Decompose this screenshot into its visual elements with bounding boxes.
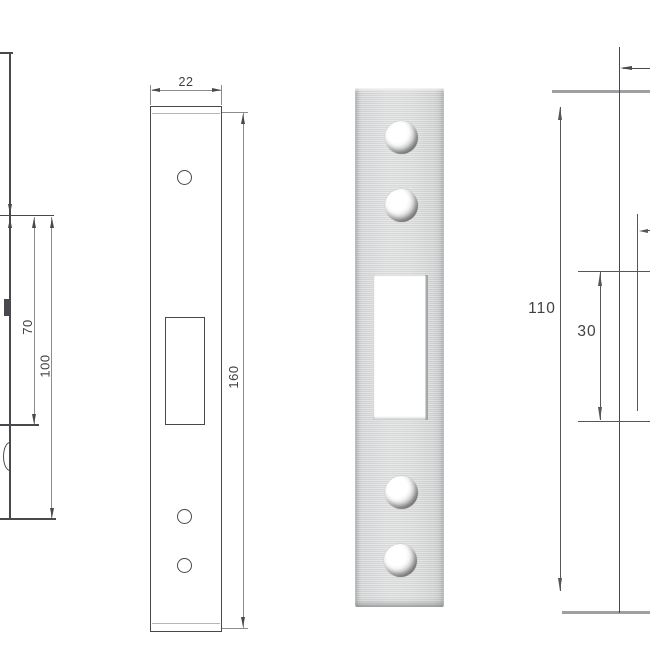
extension-line-right xyxy=(221,85,222,105)
dimension-line-30 xyxy=(600,272,601,420)
plate-top-chamfer-line xyxy=(152,113,220,114)
dimension-label-70: 70 xyxy=(21,313,35,341)
dimension-line-22 xyxy=(152,90,221,91)
plate-left-edge-line xyxy=(619,47,621,613)
arrowhead-down-icon xyxy=(50,508,54,518)
top-tick-line xyxy=(0,52,13,54)
screw-hole-outline xyxy=(177,558,192,573)
plate-top-edge-line xyxy=(552,90,650,93)
countersunk-screw-hole xyxy=(385,121,418,154)
technical-drawing-canvas: 70 100 22 160 xyxy=(0,0,650,650)
dimension-label-100: 100 xyxy=(39,349,53,384)
arrowhead-left-icon xyxy=(620,66,632,70)
dimension-line-160 xyxy=(243,113,244,628)
latch-cutout-outline xyxy=(165,317,205,425)
arrowhead-down-icon xyxy=(32,414,36,424)
countersunk-screw-hole xyxy=(384,544,417,577)
dimension-label-160: 160 xyxy=(227,359,241,395)
cutout-edge-extension-line xyxy=(637,214,638,411)
arrowhead-right-icon xyxy=(212,88,221,92)
arrowhead-left-icon xyxy=(639,229,648,233)
countersunk-screw-hole xyxy=(385,476,418,509)
latch-cutout xyxy=(373,275,428,420)
dimension-line-110 xyxy=(560,107,561,591)
arrowhead-down-icon xyxy=(598,407,602,420)
cutout-extension-line-top xyxy=(578,271,650,272)
dimension-label-22: 22 xyxy=(166,76,206,89)
plate-bottom-chamfer-line xyxy=(152,623,220,624)
extension-line-bottom-right xyxy=(222,628,248,629)
arrowhead-up-icon xyxy=(598,273,602,286)
side-view-bottom-face-line xyxy=(0,518,56,520)
countersunk-screw-hole xyxy=(385,189,418,222)
dimension-label-110: 110 xyxy=(526,301,558,318)
dimension-label-30: 30 xyxy=(574,324,600,341)
arrowhead-up-icon xyxy=(50,218,54,228)
arrowhead-up-icon xyxy=(8,218,12,228)
side-view-mid-face-line xyxy=(0,424,39,426)
screw-hole-outline xyxy=(177,170,192,185)
side-view-top-face-line xyxy=(0,215,54,217)
arrowhead-left-icon xyxy=(151,88,160,92)
arrowhead-up-icon xyxy=(241,114,245,124)
arrowhead-up-icon xyxy=(32,218,36,228)
arrowhead-up-icon xyxy=(558,107,562,120)
side-view-bolt-feature xyxy=(4,299,11,316)
screw-hole-outline xyxy=(177,509,192,524)
plate-bottom-edge-line xyxy=(562,611,650,614)
cutout-extension-line-bottom xyxy=(578,421,650,422)
arrowhead-down-icon xyxy=(558,578,562,591)
arrowhead-down-icon xyxy=(241,617,245,627)
arrowhead-down-icon xyxy=(8,204,12,214)
